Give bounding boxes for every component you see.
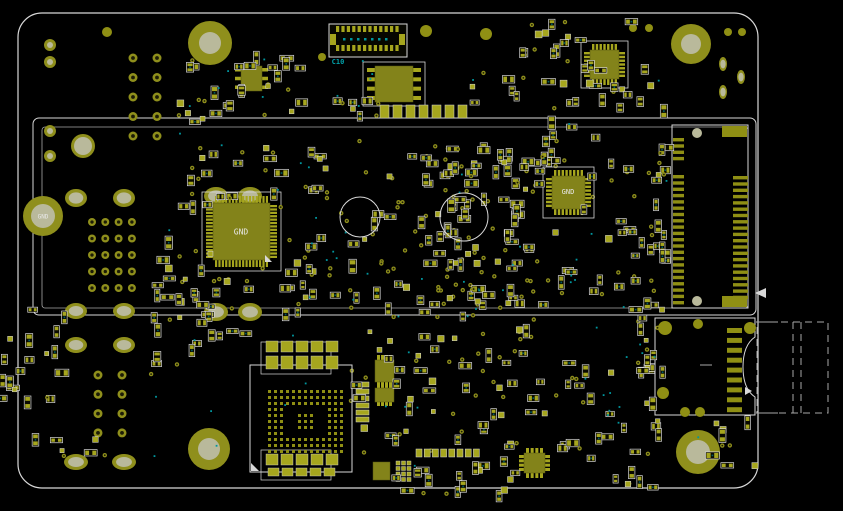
- oval-pad: [719, 85, 727, 99]
- ic-chip-u9[interactable]: [373, 462, 390, 480]
- round-pad: [102, 27, 112, 37]
- fpc-connector[interactable]: [329, 24, 407, 57]
- round-pad: [480, 28, 492, 40]
- plated-hole: [44, 56, 56, 68]
- gnd-pad[interactable]: [23, 196, 63, 236]
- oval-pad: [719, 57, 727, 71]
- oval-pad: [64, 454, 88, 470]
- mounting-hole[interactable]: [671, 24, 711, 64]
- mounting-hole[interactable]: [188, 428, 230, 470]
- round-pad: [420, 25, 432, 37]
- round-pad: [318, 53, 326, 61]
- plated-hole: [44, 150, 56, 162]
- oval-pad: [737, 70, 745, 84]
- oval-pad: [65, 303, 87, 319]
- round-pad: [724, 28, 732, 36]
- oval-pad: [112, 454, 136, 470]
- round-pad: [738, 28, 746, 36]
- mounting-hole[interactable]: [71, 134, 95, 158]
- oval-pad: [113, 189, 135, 207]
- oval-pad: [65, 189, 87, 207]
- pcb-layout-canvas[interactable]: [0, 0, 843, 511]
- round-pad: [629, 24, 637, 32]
- oval-pad: [238, 303, 262, 321]
- plated-hole: [44, 125, 56, 137]
- oval-pad: [113, 337, 135, 353]
- plated-hole: [44, 39, 56, 51]
- oval-pad: [113, 303, 135, 319]
- mounting-hole[interactable]: [188, 21, 232, 65]
- background: [0, 0, 843, 511]
- oval-pad: [65, 337, 87, 353]
- pad-row: [380, 105, 467, 118]
- round-pad: [645, 24, 653, 32]
- pcb-layout-viewport[interactable]: GND GND GND C10: [0, 0, 843, 511]
